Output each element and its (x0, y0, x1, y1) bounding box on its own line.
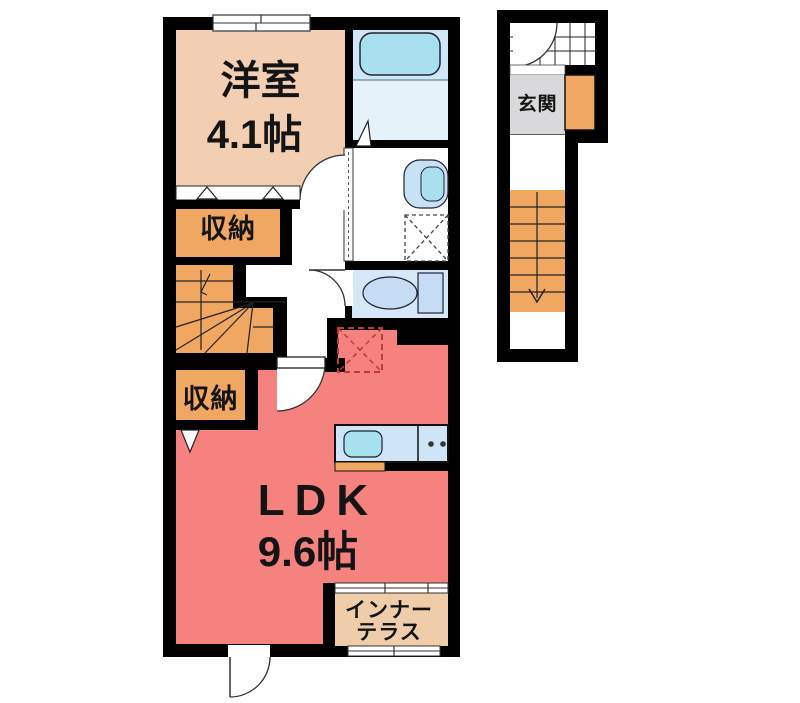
western-room-label: 洋室 (176, 60, 345, 102)
terrace-top-window-icon (335, 583, 448, 593)
ldk-entry-door-opening (228, 645, 270, 657)
staircase-lower (233, 308, 273, 353)
inner-terrace-label-2: テラス (335, 622, 443, 644)
kitchen-sink-icon (344, 431, 382, 457)
toilet-bowl-icon (363, 277, 417, 309)
bathtub-icon (360, 33, 440, 75)
entry-threshold (510, 65, 565, 75)
storage-lower-label: 収納 (176, 385, 245, 413)
washing-machine-space-icon (405, 215, 448, 261)
stove-burner-icon (428, 441, 434, 447)
floorplan: 洋室 4.1帖 収納 収納 LDK 9.6帖 インナー テラス 玄関 (0, 0, 800, 703)
entry-block (497, 10, 608, 362)
western-room-window-icon (213, 15, 310, 31)
stove-burner-icon (440, 441, 446, 447)
toilet-door-opening (344, 270, 353, 306)
storage-upper-label: 収納 (176, 215, 280, 243)
western-room-door-opening (300, 199, 345, 210)
ldk-door-leaf (277, 357, 325, 368)
ldk-size-label: 9.6帖 (228, 530, 388, 574)
staircase-upper (176, 265, 233, 353)
toilet-tank-icon (418, 273, 443, 313)
ldk-label: LDK (228, 478, 398, 524)
entrance-label: 玄関 (510, 95, 565, 115)
shoe-cabinet-icon (565, 75, 595, 130)
entry-hall-floor (510, 135, 565, 190)
washbasin-bowl-icon (421, 167, 444, 201)
inner-terrace-label-1: インナー (335, 600, 443, 622)
terrace-bottom-window-icon (348, 646, 440, 656)
stair-landing (510, 312, 565, 349)
ldk-area-5 (176, 583, 323, 644)
floor-plan-drawing (0, 0, 800, 703)
western-room-size-label: 4.1帖 (170, 114, 339, 156)
